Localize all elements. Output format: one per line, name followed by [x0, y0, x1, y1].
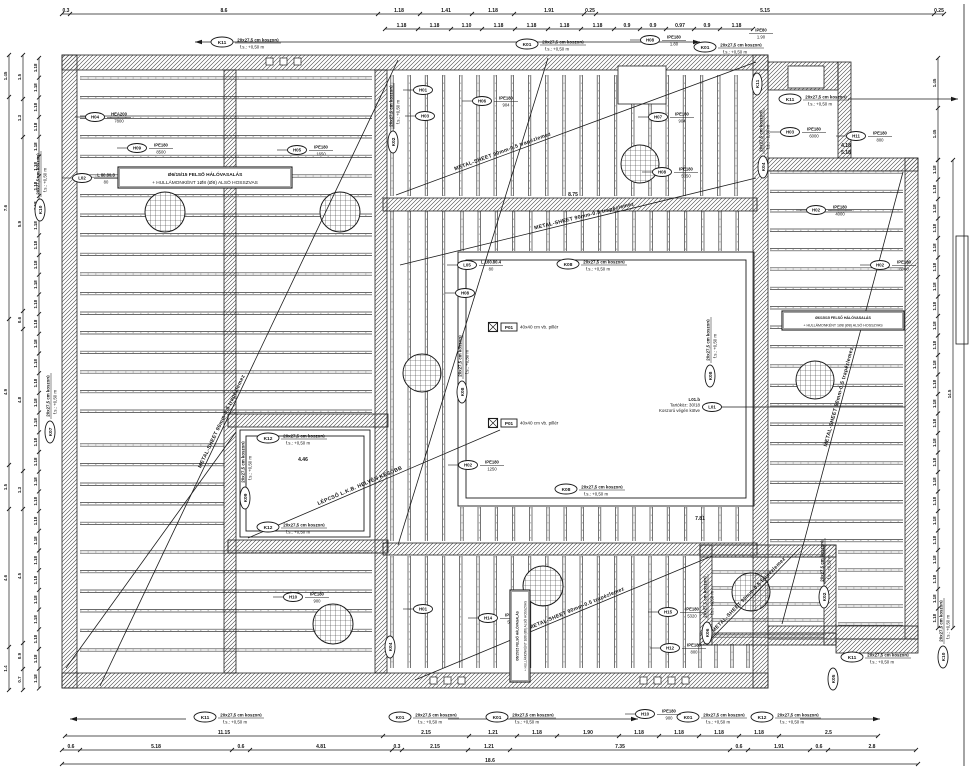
svg-text:1.18: 1.18	[932, 574, 937, 583]
svg-text:0.25: 0.25	[934, 8, 944, 14]
svg-text:K11: K11	[786, 97, 795, 103]
svg-text:H02: H02	[464, 463, 473, 468]
svg-text:1.18: 1.18	[33, 260, 38, 269]
svg-text:1.18: 1.18	[932, 555, 937, 564]
svg-text:5.9: 5.9	[17, 220, 22, 227]
svg-text:1.45: 1.45	[3, 71, 8, 80]
svg-text:20x27,5 cm koszorú: 20x27,5 cm koszorú	[581, 484, 623, 489]
svg-text:1.18: 1.18	[33, 496, 38, 505]
svg-text:IPE180: IPE180	[687, 643, 701, 648]
svg-text:0.97: 0.97	[675, 23, 685, 29]
svg-text:IPE180: IPE180	[310, 592, 324, 597]
svg-text:f.s.: +0,50 m: f.s.: +0,50 m	[240, 44, 265, 49]
svg-text:1.18: 1.18	[394, 8, 404, 14]
svg-text:800: 800	[877, 138, 885, 143]
svg-text:f.s.: +0,50 m: f.s.: +0,50 m	[765, 125, 770, 150]
svg-text:H10: H10	[641, 712, 650, 717]
svg-text:1.18: 1.18	[33, 142, 38, 151]
svg-text:4000: 4000	[835, 212, 845, 217]
svg-text:f.s.: +0,50 m: f.s.: +0,50 m	[780, 719, 805, 724]
svg-text:20x27,5 cm koszorú: 20x27,5 cm koszorú	[819, 540, 824, 582]
svg-text:1.18: 1.18	[593, 23, 603, 29]
svg-text:1.90: 1.90	[583, 730, 593, 736]
svg-text:1.18: 1.18	[932, 496, 937, 505]
svg-text:1.18: 1.18	[932, 438, 937, 447]
svg-text:1.18: 1.18	[932, 204, 937, 213]
svg-text:20x27,5 cm koszorú: 20x27,5 cm koszorú	[388, 85, 393, 127]
svg-text:K01: K01	[493, 715, 502, 721]
svg-text:1.18: 1.18	[33, 575, 38, 584]
svg-text:H03: H03	[421, 114, 430, 119]
reinforcement-note: Ø6/15/15 FELSŐ HÁLÓVASALÁS+ HULLÁMONKÉNT…	[510, 590, 530, 682]
svg-text:0.3: 0.3	[394, 744, 401, 750]
svg-text:f.s.: +0,50 m: f.s.: +0,50 m	[584, 491, 609, 496]
svg-text:1.18: 1.18	[397, 23, 407, 29]
svg-text:0.6: 0.6	[816, 744, 823, 750]
svg-text:1.3: 1.3	[17, 114, 22, 121]
svg-text:IPE180: IPE180	[675, 112, 689, 117]
svg-text:1.90: 1.90	[757, 35, 766, 40]
svg-text:5.15: 5.15	[760, 8, 770, 14]
svg-text:14.5: 14.5	[947, 389, 952, 398]
svg-text:800: 800	[691, 650, 699, 655]
svg-text:1.91: 1.91	[544, 8, 554, 14]
svg-text:1.18: 1.18	[932, 516, 937, 525]
svg-text:1.18: 1.18	[932, 243, 937, 252]
svg-text:1.18: 1.18	[714, 730, 724, 736]
svg-text:1.18: 1.18	[33, 359, 38, 368]
svg-text:H01: H01	[419, 607, 428, 612]
svg-text:1.18: 1.18	[33, 63, 38, 72]
svg-text:H11: H11	[852, 134, 860, 139]
svg-text:1.18: 1.18	[932, 418, 937, 427]
svg-text:7.35: 7.35	[615, 744, 625, 750]
svg-text:IPE180: IPE180	[897, 260, 911, 265]
svg-text:20x27,5 cm koszorú: 20x27,5 cm koszorú	[415, 712, 457, 717]
svg-text:1.18: 1.18	[33, 83, 38, 92]
svg-text:H05: H05	[293, 148, 302, 153]
svg-text:f.s.: +0,50 m: f.s.: +0,50 m	[808, 101, 833, 106]
svg-text:1.18: 1.18	[932, 301, 937, 310]
svg-text:20x27,5 cm koszorú: 20x27,5 cm koszorú	[237, 37, 279, 42]
svg-text:H12: H12	[666, 646, 675, 651]
svg-text:80: 80	[104, 180, 109, 185]
svg-text:20x27,5 cm koszorú: 20x27,5 cm koszorú	[805, 94, 847, 99]
label-K04: K04	[385, 636, 395, 658]
svg-text:8.6: 8.6	[221, 8, 228, 14]
svg-text:H14: H14	[484, 616, 493, 621]
svg-text:904: 904	[679, 119, 687, 124]
svg-text:20x27,5 cm koszorú: 20x27,5 cm koszorú	[867, 652, 909, 657]
svg-text:1.18: 1.18	[33, 102, 38, 111]
svg-text:1.18: 1.18	[33, 674, 38, 683]
svg-text:IPE180: IPE180	[662, 709, 676, 714]
svg-text:1.18: 1.18	[33, 437, 38, 446]
svg-text:0.25: 0.25	[585, 8, 595, 14]
svg-text:H01: H01	[419, 88, 428, 93]
svg-text:+ HULLÁMONKÉNT 1Ø8 (Ø8) ALSÓ H: + HULLÁMONKÉNT 1Ø8 (Ø8) ALSÓ HOSSZVAS	[522, 601, 527, 671]
svg-text:1.5: 1.5	[3, 483, 8, 490]
svg-text:4.9: 4.9	[3, 388, 8, 395]
svg-text:K04: K04	[761, 162, 767, 171]
svg-text:1.18: 1.18	[932, 535, 937, 544]
svg-text:20x27,5 cm koszorú: 20x27,5 cm koszorú	[35, 153, 40, 195]
svg-text:20x27,5 cm koszorú: 20x27,5 cm koszorú	[542, 39, 584, 44]
svg-text:IPE80: IPE80	[755, 28, 767, 33]
svg-text:1.18: 1.18	[33, 556, 38, 565]
svg-text:7800: 7800	[114, 119, 124, 124]
svg-text:Koszorú végén kötve: Koszorú végén kötve	[659, 408, 701, 413]
svg-text:f.s.: +0,50 m: f.s.: +0,50 m	[464, 350, 469, 375]
svg-text:1.18: 1.18	[527, 23, 537, 29]
label-K11: K11	[752, 73, 762, 95]
svg-text:IPE180: IPE180	[154, 143, 168, 148]
svg-text:K11: K11	[755, 79, 761, 88]
svg-text:20x27,5 cm koszorú: 20x27,5 cm koszorú	[45, 375, 50, 417]
svg-text:K12: K12	[264, 436, 273, 442]
svg-text:IPE180: IPE180	[679, 167, 693, 172]
svg-text:1.18: 1.18	[33, 280, 38, 289]
svg-text:1.18: 1.18	[674, 730, 684, 736]
svg-text:1.18: 1.18	[532, 730, 542, 736]
svg-text:K11: K11	[218, 40, 227, 46]
svg-text:1.18: 1.18	[33, 477, 38, 486]
svg-text:f.s.: +0,50 m: f.s.: +0,50 m	[870, 659, 895, 664]
svg-text:2.15: 2.15	[421, 730, 431, 736]
svg-text:20x27,5 cm koszorú: 20x27,5 cm koszorú	[777, 712, 819, 717]
svg-text:K08: K08	[460, 387, 466, 396]
svg-text:IPE180: IPE180	[314, 145, 328, 150]
svg-text:1.18: 1.18	[560, 23, 570, 29]
svg-text:40x40 cm vb. pillér: 40x40 cm vb. pillér	[520, 325, 559, 330]
svg-text:K12: K12	[264, 525, 273, 531]
svg-text:1.18: 1.18	[33, 378, 38, 387]
svg-text:f.s.: +0,50 m: f.s.: +0,50 m	[286, 529, 311, 534]
svg-text:f.s.: +0,50 m: f.s.: +0,50 m	[545, 46, 570, 51]
svg-text:8.75: 8.75	[568, 192, 578, 198]
svg-text:2.15: 2.15	[430, 744, 440, 750]
svg-text:IPE180: IPE180	[873, 131, 887, 136]
svg-text:IPE180: IPE180	[833, 205, 847, 210]
svg-text:1.18: 1.18	[932, 165, 937, 174]
svg-text:H04: H04	[91, 115, 100, 120]
svg-text:Ø6/15/15 FELSŐ HÁLÓVASALÁS: Ø6/15/15 FELSŐ HÁLÓVASALÁS	[514, 611, 519, 661]
svg-text:1.18: 1.18	[932, 477, 937, 486]
svg-text:1.3: 1.3	[17, 486, 22, 493]
reinforcement-note: Ø6/15/15 FELSŐ HÁLÓVASALÁS+ HULLÁMONKÉNT…	[118, 167, 292, 188]
svg-text:1.10: 1.10	[462, 23, 472, 29]
svg-text:1.18: 1.18	[33, 339, 38, 348]
svg-text:5.18: 5.18	[841, 150, 851, 156]
svg-text:1.18: 1.18	[932, 282, 937, 291]
svg-text:Ø6/15/15 FELSŐ HÁLÓVASALÁS: Ø6/15/15 FELSŐ HÁLÓVASALÁS	[815, 315, 871, 320]
svg-text:40x40 cm vb. pillér: 40x40 cm vb. pillér	[520, 421, 559, 426]
svg-text:1.18: 1.18	[33, 516, 38, 525]
svg-text:20x27,5 cm koszorú: 20x27,5 cm koszorú	[758, 110, 763, 152]
svg-text:1.18: 1.18	[33, 122, 38, 131]
svg-text:5050: 5050	[681, 174, 691, 179]
svg-text:H06: H06	[478, 99, 487, 104]
svg-text:K11: K11	[201, 715, 210, 721]
svg-text:6000: 6000	[899, 267, 909, 272]
svg-text:904: 904	[503, 103, 511, 108]
svg-text:L 80.80.8: L 80.80.8	[97, 173, 115, 178]
svg-text:f.s.: +0,50 m: f.s.: +0,50 m	[723, 49, 748, 54]
svg-text:1.45: 1.45	[932, 129, 937, 138]
svg-text:1.18: 1.18	[33, 418, 38, 427]
svg-text:H10: H10	[289, 595, 298, 600]
svg-text:20x27,5 cm koszorú: 20x27,5 cm koszorú	[702, 576, 707, 618]
svg-text:1.4: 1.4	[3, 665, 8, 672]
svg-text:H15: H15	[664, 610, 673, 615]
svg-text:H03: H03	[786, 130, 795, 135]
svg-text:IPE180: IPE180	[667, 35, 681, 40]
svg-text:0.9: 0.9	[624, 23, 631, 29]
svg-text:5320: 5320	[687, 614, 697, 619]
svg-text:1.18: 1.18	[33, 240, 38, 249]
svg-text:f.s.: +0,50 m: f.s.: +0,50 m	[286, 440, 311, 445]
svg-text:Tartóköz: 30/18: Tartóköz: 30/18	[670, 403, 701, 408]
svg-text:P01: P01	[505, 325, 514, 330]
svg-text:K08: K08	[564, 262, 573, 268]
svg-text:0.3: 0.3	[63, 8, 70, 14]
svg-text:K02: K02	[391, 137, 397, 146]
svg-text:1.18: 1.18	[33, 654, 38, 663]
svg-text:1.18: 1.18	[754, 730, 764, 736]
svg-text:1.91: 1.91	[774, 744, 784, 750]
svg-text:f.s.: +0,50 m: f.s.: +0,50 m	[247, 456, 252, 481]
svg-text:0.6: 0.6	[736, 744, 743, 750]
svg-text:H02: H02	[876, 263, 885, 268]
svg-text:8500: 8500	[156, 150, 166, 155]
svg-text:f.s.: +0,50 m: f.s.: +0,50 m	[515, 719, 540, 724]
svg-text:900: 900	[314, 599, 322, 604]
svg-text:1.18: 1.18	[33, 221, 38, 230]
svg-text:K01: K01	[396, 715, 405, 721]
svg-text:K01: K01	[701, 45, 710, 51]
svg-text:4.18: 4.18	[841, 143, 851, 149]
svg-text:H08: H08	[646, 38, 655, 43]
reinforcement-note: Ø6/15/15 FELSŐ HÁLÓVASALÁS+ HULLÁMONKÉNT…	[782, 311, 904, 330]
svg-text:L01: L01	[708, 405, 716, 410]
svg-text:2.8: 2.8	[869, 744, 876, 750]
svg-text:f.s.: +0,50 m: f.s.: +0,50 m	[395, 100, 400, 125]
svg-text:H02: H02	[812, 208, 821, 213]
svg-text:20x27,5 cm koszorú: 20x27,5 cm koszorú	[283, 433, 325, 438]
svg-text:H09: H09	[133, 146, 142, 151]
svg-text:4.6: 4.6	[3, 574, 8, 581]
svg-text:0.9: 0.9	[704, 23, 711, 29]
svg-text:20x27,5 cm koszorú: 20x27,5 cm koszorú	[938, 600, 943, 642]
drawing-canvas: METAL-SHEET 90mm-0.5 trapézlemezMETAL-SH…	[0, 0, 969, 770]
svg-text:f.s.: +0,50 m: f.s.: +0,50 m	[52, 390, 57, 415]
svg-text:+ HULLÁMONKÉNT 1Ø8 (Ø8) ALSÓ H: + HULLÁMONKÉNT 1Ø8 (Ø8) ALSÓ HOSSZVAS	[152, 179, 258, 186]
svg-text:H08: H08	[658, 170, 667, 175]
svg-text:1.18: 1.18	[932, 262, 937, 271]
svg-text:1.18: 1.18	[33, 299, 38, 308]
svg-text:f.s.: +0,50 m: f.s.: +0,50 m	[586, 266, 611, 271]
svg-text:1.18: 1.18	[634, 730, 644, 736]
svg-text:K08: K08	[562, 487, 571, 493]
svg-text:K01: K01	[523, 42, 532, 48]
svg-text:20x27,5 cm koszorú: 20x27,5 cm koszorú	[720, 42, 762, 47]
svg-text:L05: L05	[463, 263, 471, 268]
svg-text:0.9: 0.9	[17, 652, 22, 659]
svg-text:1.18: 1.18	[932, 223, 937, 232]
svg-text:1.18: 1.18	[932, 340, 937, 349]
svg-text:H07: H07	[654, 115, 663, 120]
svg-text:4.5: 4.5	[17, 572, 22, 579]
svg-text:0.6: 0.6	[68, 744, 75, 750]
svg-text:1.5: 1.5	[17, 73, 22, 80]
svg-text:900: 900	[666, 716, 674, 721]
svg-text:20x27,5 cm koszorú: 20x27,5 cm koszorú	[283, 522, 325, 527]
svg-text:L 160.80.4: L 160.80.4	[481, 260, 502, 265]
svg-text:K12: K12	[758, 715, 767, 721]
svg-text:P01: P01	[505, 421, 514, 426]
svg-text:20x27,5 cm koszorú: 20x27,5 cm koszorú	[512, 712, 554, 717]
svg-text:f.s.: +0,50 m: f.s.: +0,50 m	[712, 334, 717, 359]
svg-text:0.9: 0.9	[650, 23, 657, 29]
svg-text:IPE180: IPE180	[485, 460, 499, 465]
svg-text:80: 80	[489, 267, 494, 272]
svg-text:HEA200: HEA200	[111, 112, 127, 117]
svg-text:K10: K10	[38, 205, 44, 214]
svg-text:K04: K04	[388, 642, 394, 651]
svg-text:K09: K09	[243, 493, 249, 502]
svg-text:1.18: 1.18	[932, 379, 937, 388]
svg-text:1250: 1250	[487, 467, 497, 472]
svg-text:K06: K06	[705, 628, 711, 637]
svg-text:20x27,5 cm koszorú: 20x27,5 cm koszorú	[220, 712, 262, 717]
svg-text:2.5: 2.5	[825, 730, 832, 736]
svg-text:20x27,5 cm koszorú: 20x27,5 cm koszorú	[703, 712, 745, 717]
svg-text:1.18: 1.18	[33, 536, 38, 545]
svg-text:f.s.: +0,50 m: f.s.: +0,50 m	[709, 591, 714, 616]
svg-text:1.45: 1.45	[932, 78, 937, 87]
svg-text:+ HULLÁMONKÉNT 1Ø8 (Ø8) ALSÓ H: + HULLÁMONKÉNT 1Ø8 (Ø8) ALSÓ HOSSZVAS	[803, 323, 883, 328]
svg-text:K02: K02	[822, 592, 828, 601]
svg-text:1.21: 1.21	[484, 744, 494, 750]
svg-text:1.18: 1.18	[932, 321, 937, 330]
svg-text:4.46: 4.46	[298, 457, 308, 463]
svg-text:f.s.: +0,50 m: f.s.: +0,50 m	[418, 719, 443, 724]
svg-text:f.s.: +0,50 m: f.s.: +0,50 m	[826, 555, 831, 580]
svg-text:20x27,5 cm koszorú: 20x27,5 cm koszorú	[457, 335, 462, 377]
svg-text:1.18: 1.18	[932, 457, 937, 466]
svg-text:f.s.: +0,50 m: f.s.: +0,50 m	[42, 168, 47, 193]
svg-text:L01.b: L01.b	[689, 397, 701, 402]
svg-text:1.18: 1.18	[932, 184, 937, 193]
svg-text:f.s.: +0,50 m: f.s.: +0,50 m	[945, 615, 950, 640]
svg-text:20x27,5 cm koszorú: 20x27,5 cm koszorú	[705, 319, 710, 361]
svg-text:f.s.: +0,50 m: f.s.: +0,50 m	[223, 719, 248, 724]
svg-text:1.18: 1.18	[33, 398, 38, 407]
svg-text:K11: K11	[848, 655, 857, 661]
svg-text:1.18: 1.18	[932, 399, 937, 408]
svg-text:1.18: 1.18	[33, 615, 38, 624]
svg-text:IPE180: IPE180	[685, 607, 699, 612]
svg-text:L02: L02	[78, 176, 86, 181]
svg-text:1.18: 1.18	[494, 23, 504, 29]
svg-text:5.18: 5.18	[151, 744, 161, 750]
svg-text:f.s.: +0,50 m: f.s.: +0,50 m	[706, 719, 731, 724]
svg-text:7.81: 7.81	[695, 516, 705, 522]
svg-text:IPE180: IPE180	[499, 96, 513, 101]
svg-text:H08: H08	[461, 291, 470, 296]
svg-text:4.8: 4.8	[17, 396, 22, 403]
svg-text:1.18: 1.18	[732, 23, 742, 29]
svg-text:18.6: 18.6	[485, 758, 495, 764]
svg-text:K01: K01	[684, 715, 693, 721]
svg-text:1.18: 1.18	[33, 319, 38, 328]
svg-text:1.80: 1.80	[670, 42, 679, 47]
svg-text:1650: 1650	[316, 152, 326, 157]
svg-text:6000: 6000	[809, 134, 819, 139]
svg-text:0.7: 0.7	[17, 676, 22, 683]
svg-text:1.18: 1.18	[33, 457, 38, 466]
svg-text:4.81: 4.81	[316, 744, 326, 750]
svg-text:1.18: 1.18	[33, 634, 38, 643]
svg-text:20x27,5 cm koszorú: 20x27,5 cm koszorú	[240, 441, 245, 483]
svg-text:1.21: 1.21	[488, 730, 498, 736]
svg-text:1.18: 1.18	[430, 23, 440, 29]
svg-text:7.6: 7.6	[3, 204, 8, 211]
svg-text:1.18: 1.18	[488, 8, 498, 14]
svg-text:0.6: 0.6	[17, 316, 22, 323]
svg-text:1.18: 1.18	[932, 613, 937, 622]
svg-text:1.18: 1.18	[33, 595, 38, 604]
svg-text:0.6: 0.6	[238, 744, 245, 750]
svg-text:20x27,5 cm koszorú: 20x27,5 cm koszorú	[583, 259, 625, 264]
svg-text:K10: K10	[941, 652, 947, 661]
svg-text:K08: K08	[708, 371, 714, 380]
svg-text:11.15: 11.15	[218, 730, 230, 736]
floor-plan-svg: METAL-SHEET 90mm-0.5 trapézlemezMETAL-SH…	[0, 0, 969, 770]
svg-text:K07: K07	[48, 427, 54, 436]
svg-text:K05: K05	[831, 674, 837, 683]
svg-text:1.18: 1.18	[932, 360, 937, 369]
label-K05: K05	[828, 668, 838, 690]
svg-text:IPE180: IPE180	[807, 127, 821, 132]
svg-text:1.18: 1.18	[932, 594, 937, 603]
svg-text:1.41: 1.41	[441, 8, 451, 14]
